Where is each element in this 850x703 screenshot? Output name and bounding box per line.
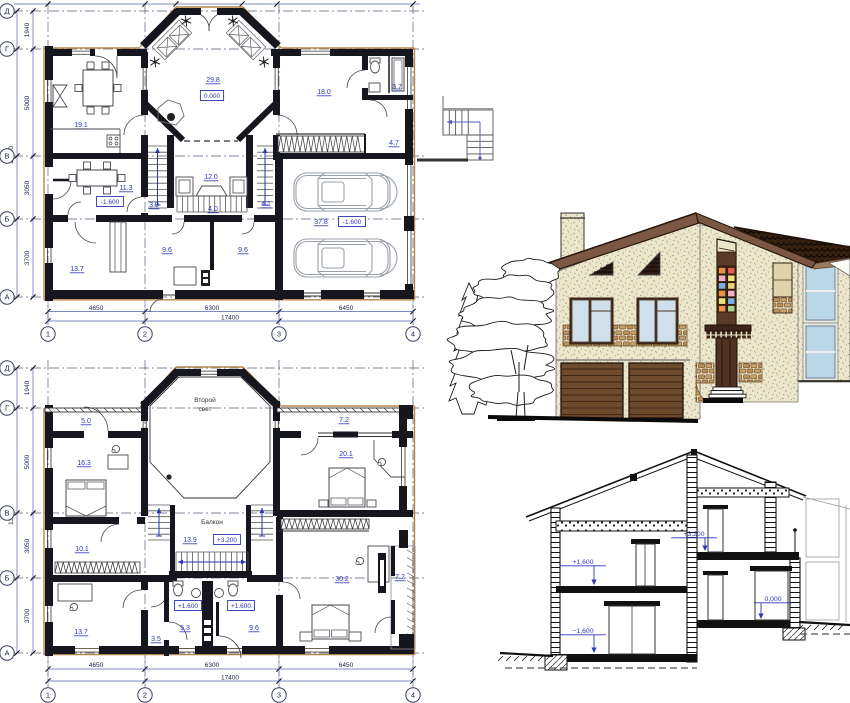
svg-text:0,000: 0,000 (764, 596, 781, 603)
svg-text:4650: 4650 (89, 662, 104, 669)
svg-text:1940: 1940 (24, 380, 31, 395)
svg-text:5000: 5000 (24, 95, 31, 110)
svg-text:9.6: 9.6 (249, 625, 259, 632)
svg-text:Балкон: Балкон (201, 519, 223, 526)
svg-text:6300: 6300 (205, 305, 220, 312)
svg-text:3.7: 3.7 (392, 84, 402, 91)
svg-text:17400: 17400 (221, 675, 239, 682)
svg-text:+1.600: +1.600 (178, 603, 198, 610)
svg-text:13.7: 13.7 (70, 266, 84, 273)
svg-text:11.3: 11.3 (119, 185, 132, 192)
svg-text:3.9: 3.9 (149, 202, 159, 209)
svg-text:0.000: 0.000 (204, 93, 221, 100)
svg-text:5.3: 5.3 (180, 625, 190, 632)
svg-text:−1,600: −1,600 (573, 628, 594, 635)
svg-text:Второй: Второй (194, 396, 216, 404)
svg-text:3: 3 (277, 691, 281, 700)
svg-text:9.6: 9.6 (162, 247, 172, 254)
svg-text:37.8: 37.8 (314, 219, 328, 226)
svg-text:3.5: 3.5 (151, 636, 161, 643)
svg-text:7.2: 7.2 (395, 574, 405, 581)
svg-text:6450: 6450 (339, 305, 354, 312)
svg-text:29.8: 29.8 (206, 77, 220, 84)
svg-text:16.3: 16.3 (77, 460, 91, 467)
svg-text:3: 3 (277, 330, 281, 339)
svg-text:3050: 3050 (24, 538, 31, 553)
svg-text:Д: Д (4, 7, 9, 16)
svg-text:4: 4 (411, 691, 415, 700)
svg-text:Г: Г (5, 404, 9, 413)
svg-text:4.1: 4.1 (261, 201, 271, 208)
svg-text:13.7: 13.7 (74, 629, 88, 636)
svg-text:7.2: 7.2 (339, 417, 349, 424)
svg-text:5.0: 5.0 (81, 418, 91, 425)
svg-text:1: 1 (46, 330, 50, 339)
svg-text:4650: 4650 (89, 305, 104, 312)
svg-text:4.7: 4.7 (389, 140, 399, 147)
svg-text:9.6: 9.6 (238, 247, 248, 254)
svg-text:18.0: 18.0 (317, 89, 331, 96)
svg-text:Б: Б (5, 215, 10, 224)
svg-text:19.1: 19.1 (74, 122, 88, 129)
svg-text:+3.200: +3.200 (217, 537, 237, 544)
svg-text:2: 2 (143, 330, 147, 339)
svg-text:12.0: 12.0 (204, 174, 218, 181)
svg-text:+1,600: +1,600 (573, 559, 594, 566)
svg-text:В: В (4, 152, 9, 161)
svg-text:+1.600: +1.600 (231, 603, 251, 610)
svg-text:6300: 6300 (205, 662, 220, 669)
svg-text:свет: свет (198, 406, 211, 413)
svg-text:30.2: 30.2 (335, 576, 349, 583)
svg-text:4: 4 (411, 330, 415, 339)
svg-text:3050: 3050 (24, 180, 31, 195)
svg-text:А: А (4, 649, 9, 658)
svg-text:10.1: 10.1 (75, 546, 89, 553)
svg-text:1: 1 (46, 691, 50, 700)
svg-text:Б: Б (5, 574, 10, 583)
svg-text:6450: 6450 (339, 662, 354, 669)
svg-text:2: 2 (143, 691, 147, 700)
svg-text:5000: 5000 (24, 454, 31, 469)
svg-text:20.1: 20.1 (339, 451, 353, 458)
svg-text:Г: Г (5, 45, 9, 54)
svg-text:+3,200: +3,200 (684, 531, 705, 538)
svg-text:В: В (4, 509, 9, 518)
svg-text:-1.600: -1.600 (101, 199, 120, 206)
svg-text:3700: 3700 (24, 250, 31, 265)
svg-text:17400: 17400 (221, 315, 239, 322)
svg-text:4.0: 4.0 (208, 206, 218, 213)
svg-text:-1.600: -1.600 (343, 219, 362, 226)
svg-text:1940: 1940 (24, 22, 31, 37)
svg-text:Д: Д (4, 364, 9, 373)
svg-text:13.9: 13.9 (183, 537, 197, 544)
svg-text:3700: 3700 (24, 608, 31, 623)
svg-text:А: А (4, 293, 9, 302)
